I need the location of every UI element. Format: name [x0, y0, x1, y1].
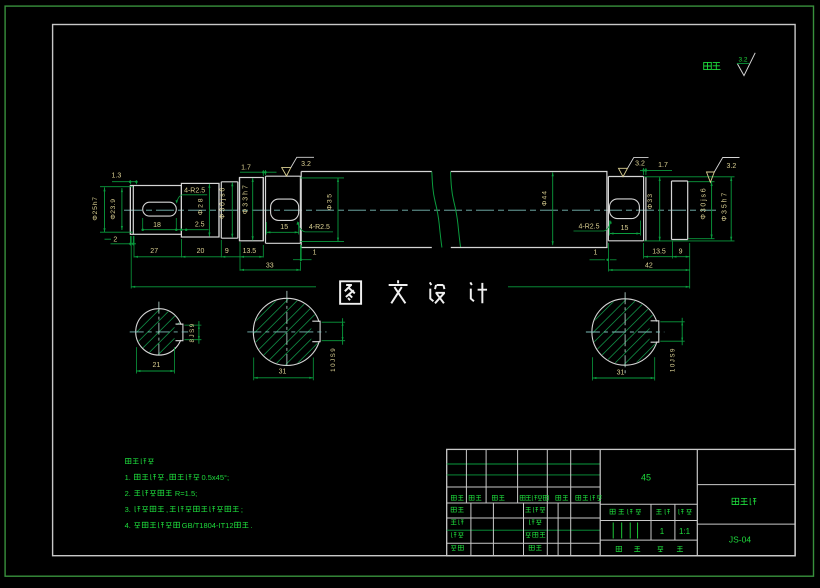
svg-text:3.: 3. [125, 505, 131, 514]
svg-text:;: ; [241, 505, 243, 514]
svg-text:3.2: 3.2 [635, 161, 645, 168]
svg-text:21: 21 [153, 362, 161, 369]
svg-text:31: 31 [617, 369, 625, 376]
svg-text:2: 2 [113, 236, 117, 243]
svg-text:45: 45 [641, 473, 651, 483]
svg-text:20: 20 [197, 248, 205, 255]
svg-text:18: 18 [153, 222, 161, 229]
svg-text:1: 1 [593, 249, 597, 256]
svg-text:15: 15 [280, 224, 288, 231]
svg-text:2.: 2. [125, 489, 131, 498]
svg-text:1:1: 1:1 [679, 527, 691, 536]
svg-text:1: 1 [660, 527, 665, 536]
svg-text:Φ33: Φ33 [647, 193, 654, 210]
svg-text:Φ35h7: Φ35h7 [721, 191, 728, 222]
svg-text:4.: 4. [125, 521, 131, 530]
svg-text:4-R2.5: 4-R2.5 [578, 223, 599, 230]
svg-text:33: 33 [266, 263, 274, 270]
svg-text:4-R2.5: 4-R2.5 [309, 224, 330, 231]
svg-text:8JS9: 8JS9 [189, 322, 196, 342]
svg-text:10JS9: 10JS9 [330, 347, 337, 372]
svg-text:13.5: 13.5 [652, 249, 666, 256]
svg-text:4-R2.5: 4-R2.5 [184, 187, 205, 194]
svg-text:15: 15 [621, 225, 629, 232]
svg-text:0.5x45°;: 0.5x45°; [202, 473, 230, 482]
svg-text:9: 9 [225, 248, 229, 255]
svg-text:13.5: 13.5 [243, 248, 257, 255]
svg-text:3.2: 3.2 [738, 56, 747, 63]
svg-text:.: . [251, 521, 253, 530]
svg-text:Φ28: Φ28 [197, 197, 204, 215]
svg-text:1.: 1. [125, 473, 131, 482]
svg-text:31: 31 [279, 369, 287, 376]
svg-text:GB/T1804-IT12: GB/T1804-IT12 [182, 521, 234, 530]
svg-text:Φ33h7: Φ33h7 [243, 183, 250, 214]
svg-text:Φ30js6: Φ30js6 [220, 186, 227, 219]
svg-text:3.2: 3.2 [301, 161, 311, 168]
svg-text:Φ25h7: Φ25h7 [92, 196, 99, 221]
svg-text:R=1.5;: R=1.5; [175, 489, 197, 498]
svg-text:JS-04: JS-04 [729, 534, 751, 544]
svg-text:1: 1 [313, 250, 317, 257]
svg-text:42: 42 [645, 263, 653, 270]
svg-text:,: , [166, 505, 168, 514]
svg-text:10JS9: 10JS9 [670, 347, 677, 372]
svg-text:9: 9 [679, 249, 683, 256]
svg-text:Φ35: Φ35 [327, 192, 334, 210]
svg-text:27: 27 [150, 248, 158, 255]
svg-text:1.3: 1.3 [112, 173, 122, 180]
svg-text:Φ30js6: Φ30js6 [700, 187, 707, 220]
svg-text:2.5: 2.5 [195, 222, 205, 229]
svg-text:,: , [166, 473, 168, 482]
svg-text:1.7: 1.7 [241, 164, 251, 171]
svg-text:Φ44: Φ44 [542, 190, 549, 206]
svg-text:1.7: 1.7 [658, 162, 668, 169]
svg-text:3.2: 3.2 [727, 163, 737, 170]
svg-text:Φ23.9: Φ23.9 [110, 199, 117, 220]
